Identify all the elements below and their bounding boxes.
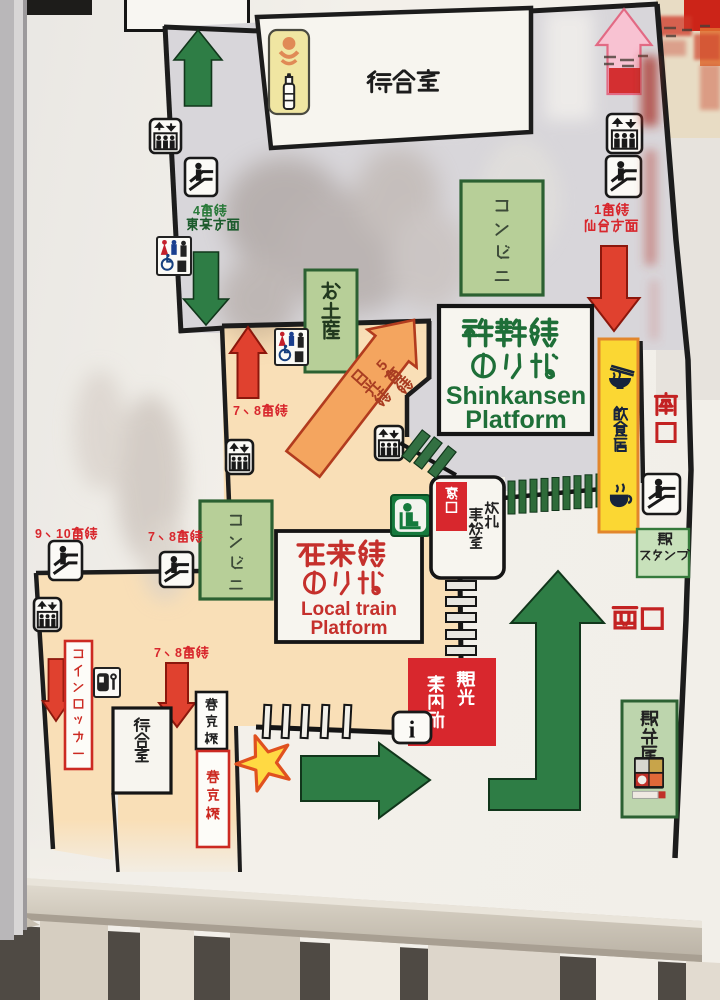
svg-text:7: 7 bbox=[233, 404, 240, 418]
svg-text:8: 8 bbox=[175, 646, 182, 660]
svg-text:Platform: Platform bbox=[310, 618, 387, 639]
svg-text:8: 8 bbox=[169, 530, 176, 544]
svg-text:7: 7 bbox=[148, 530, 155, 544]
svg-text:Platform: Platform bbox=[465, 406, 566, 434]
svg-text:i: i bbox=[409, 717, 416, 743]
svg-text:1: 1 bbox=[56, 527, 63, 541]
svg-text:9: 9 bbox=[35, 527, 42, 541]
svg-text:Local train: Local train bbox=[301, 599, 397, 620]
svg-text:1: 1 bbox=[594, 202, 601, 217]
svg-text:4: 4 bbox=[193, 204, 200, 218]
svg-text:7: 7 bbox=[154, 646, 161, 660]
svg-text:8: 8 bbox=[254, 404, 261, 418]
svg-text:0: 0 bbox=[64, 527, 71, 541]
